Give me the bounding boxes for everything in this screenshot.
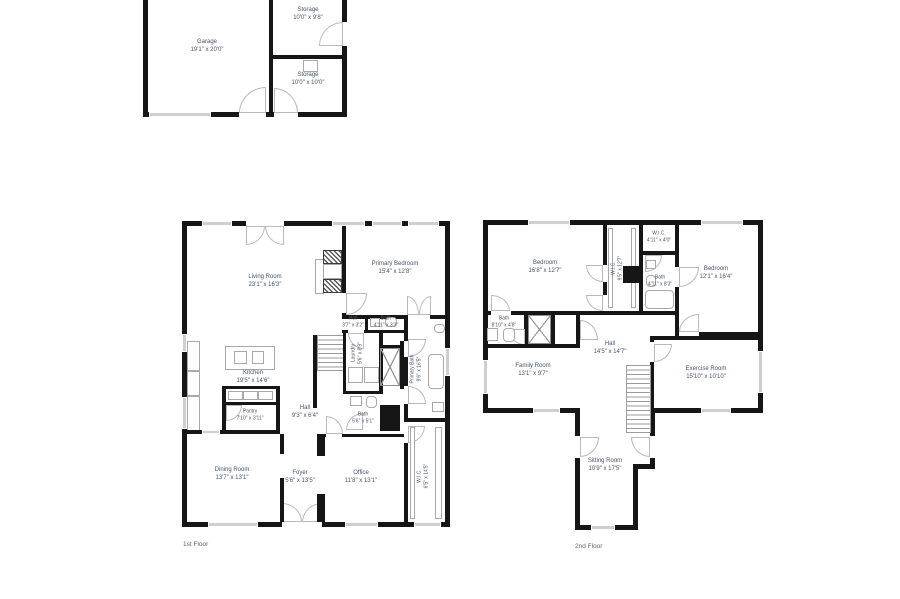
door-arc (319, 22, 343, 46)
kitchen-island (225, 346, 275, 370)
room-label-primary-bedroom: Primary Bedroom 15'4" x 12'8" (372, 260, 419, 276)
chimney-chase (623, 266, 639, 283)
wall (404, 357, 408, 386)
room-dims: 6'5" x 14'5" (423, 464, 430, 489)
shelf (243, 391, 258, 400)
room-name: Family Room (515, 362, 550, 370)
window (701, 408, 731, 413)
room-name: Hall (594, 340, 627, 348)
door-arc (586, 265, 603, 282)
window (345, 522, 378, 527)
room-dims: 4'11" x 4'0" (647, 237, 671, 244)
door-arc (326, 416, 343, 434)
wall (317, 494, 325, 522)
room-dims: 3'7" x 3'2" (342, 322, 364, 329)
wall (603, 282, 607, 295)
room-dims: 23'1" x 16'3" (248, 281, 281, 289)
room-label-hall: Hall 14'5" x 14'7" (594, 340, 627, 356)
wall (280, 478, 284, 522)
staircase (317, 335, 344, 371)
fireplace-box (323, 264, 342, 279)
window (758, 351, 763, 393)
toilet-fixture (366, 396, 377, 408)
sink-fixture (432, 402, 444, 412)
window (372, 221, 402, 226)
shower-box (380, 348, 400, 386)
garage-plan: Garage 19'1" x 20'0" Storage 10'0" x 9'8… (143, 0, 347, 118)
wall (143, 0, 148, 117)
room-label-wic-main: W.I.C. 9'5" x 12'7" (611, 256, 624, 281)
fireplace-hatch (323, 250, 342, 264)
door-gap (282, 522, 322, 527)
room-label-wic-small: W.I.C. 4'11" x 4'0" (647, 231, 671, 244)
closet-xbox (528, 315, 551, 344)
bathtub-fixture (428, 354, 444, 389)
washer-fixture (348, 367, 363, 383)
room-name: Bedroom (700, 265, 733, 273)
shelf (228, 391, 243, 400)
room-dims: 19'5" x 14'6" (237, 377, 270, 385)
wall (639, 225, 643, 313)
room-dims: 13'7" x 13'1" (215, 474, 250, 482)
room-label-hall-main: Hall 9'3" x 6'4" (292, 404, 318, 420)
door-arc (419, 296, 431, 315)
room-label-storage-lower: Storage 10'0" x 10'0" (292, 71, 325, 87)
island-sink-fixture (252, 351, 264, 364)
room-label-storage-upper: Storage 10'0" x 9'8" (293, 6, 323, 22)
wall (603, 311, 679, 315)
wall (269, 55, 347, 59)
window (701, 220, 743, 225)
room-dims: 4'11" x 8'3" (648, 281, 672, 288)
room-name: Storage (292, 71, 325, 79)
room-label-primary-bath: Primary Bath 9'6" x 16'5" (410, 355, 423, 384)
bathtub-fixture (645, 290, 674, 309)
room-name: Kitchen (237, 369, 270, 377)
door-arc (408, 386, 426, 404)
counter (187, 341, 200, 371)
window (208, 522, 258, 527)
window (483, 360, 488, 394)
room-label-sitting-room: Sitting Room 10'9" x 17'5" (588, 457, 622, 473)
room-label-laundry: Laundry 5'6" x 8'9" (351, 342, 364, 364)
room-dims: 11'8" x 13'1" (345, 477, 377, 485)
room-dims: 5'6" x 5'1" (352, 418, 374, 425)
door-arc (586, 295, 603, 311)
room-name: Living Room (248, 273, 281, 281)
dryer-fixture (364, 367, 379, 383)
room-label-family-room: Family Room 13'1" x 9'7" (515, 362, 550, 378)
wall (483, 311, 491, 315)
room-dims: 15'4" x 12'8" (372, 268, 419, 276)
floor-label-1st: 1st Floor (183, 541, 208, 548)
door-arc (679, 314, 699, 332)
wall (675, 287, 679, 332)
wall (404, 418, 450, 422)
room-name: Dining Room (215, 466, 250, 474)
room-name: Exercise Room (686, 365, 727, 373)
window (414, 522, 441, 527)
counter (187, 396, 200, 434)
door-arc (274, 88, 298, 113)
wall (483, 408, 578, 413)
wall (317, 434, 325, 456)
window (408, 221, 439, 226)
room-label-bath-lower: Bath 5'6" x 5'1" (352, 412, 374, 425)
staircase (626, 365, 651, 433)
room-dims: 13'1" x 9'7" (515, 370, 550, 378)
closet-rod (410, 427, 415, 519)
room-name: Hall (292, 404, 318, 412)
room-label-bedroom-right: Bedroom 12'1" x 16'4" (700, 265, 733, 281)
window (533, 408, 560, 413)
door-arc (265, 226, 284, 245)
window (202, 221, 232, 226)
room-dims: 10'0" x 9'8" (293, 14, 323, 22)
window (332, 221, 365, 226)
sink-fixture (646, 260, 656, 269)
toilet-fixture (434, 324, 445, 333)
room-dims: 9'5" x 12'7" (617, 256, 624, 281)
wall (404, 404, 408, 418)
room-dims: 14'5" x 14'7" (594, 348, 627, 356)
door-arc (580, 437, 599, 457)
wall (343, 391, 383, 394)
room-name: Office (345, 469, 377, 477)
room-label-exercise-room: Exercise Room 15'10" x 10'10" (686, 365, 727, 381)
wall (222, 386, 280, 389)
sink-fixture (350, 396, 362, 406)
room-label-bath-upper: Bath 4'11" x 8'3" (648, 275, 672, 288)
room-name: Sitting Room (588, 457, 622, 465)
door-arc (580, 320, 598, 340)
room-label-dining-room: Dining Room 13'7" x 13'1" (215, 466, 250, 482)
wall (343, 333, 346, 391)
wall (483, 344, 580, 348)
room-name: Bedroom (529, 259, 562, 267)
room-label-garage: Garage 19'1" x 20'0" (191, 38, 224, 54)
wall (404, 315, 408, 341)
floorplan-canvas: Garage 19'1" x 20'0" Storage 10'0" x 9'8… (0, 0, 900, 599)
room-name: Primary Bedroom (372, 260, 419, 268)
wall (342, 226, 346, 293)
room-dims: 9'3" x 6'4" (292, 412, 318, 420)
room-dims: 15'10" x 10'10" (686, 373, 727, 381)
door-arc (407, 296, 419, 315)
room-dims: 9'6" x 16'5" (416, 355, 423, 384)
room-label-office: Office 11'8" x 13'1" (345, 469, 377, 485)
door-arc (631, 437, 650, 457)
second-floor-plan: Bedroom 16'8" x 12'7" W.I.C. 9'5" x 12'7… (483, 220, 764, 530)
room-label-living-room: Living Room 23'1" x 16'3" (248, 273, 281, 289)
room-dims: 16'8" x 12'7" (529, 267, 562, 275)
wall (575, 408, 580, 530)
door-gap (326, 434, 342, 437)
window (445, 348, 450, 376)
first-floor-plan: Living Room 23'1" x 16'3" Primary Bedroo… (182, 221, 450, 527)
wall (603, 225, 607, 265)
room-label-hall-upper: Hall 3'7" x 3'2" (342, 316, 364, 329)
door-arc (239, 87, 266, 113)
shelf (258, 391, 273, 400)
room-label-kitchen: Kitchen 19'5" x 14'6" (237, 369, 270, 385)
room-dims: 19'1" x 20'0" (191, 46, 224, 54)
door-arc (491, 295, 510, 311)
room-label-wic: W.I.C. 6'5" x 14'5" (417, 464, 430, 489)
wall (650, 336, 763, 340)
opening (202, 430, 220, 434)
room-label-foyer: Foyer 5'6" x 13'5" (285, 469, 315, 485)
door-arc (679, 267, 699, 287)
room-dims: 10'9" x 17'5" (588, 465, 622, 473)
closet-shelf (435, 427, 442, 519)
wall (404, 443, 408, 522)
room-name: Primary Bath (410, 355, 417, 384)
fireplace-hatch (323, 279, 342, 293)
chimney-chase (380, 405, 400, 431)
room-dims: 12'1" x 16'4" (700, 273, 733, 281)
door-arc (654, 344, 672, 362)
room-name: Garage (191, 38, 224, 46)
room-label-pantry: Pantry 7'10" x 3'11" (236, 409, 263, 422)
door-arc (282, 503, 302, 522)
wall (430, 315, 450, 319)
room-dims: 5'6" x 8'9" (357, 342, 364, 364)
stove-fixture (234, 351, 247, 364)
room-dims: 8'10" x 4'8" (492, 322, 517, 329)
room-label-bedroom-left: Bedroom 16'8" x 12'7" (529, 259, 562, 275)
door-gap (650, 436, 655, 458)
sink-fixture (487, 328, 498, 341)
wall (675, 225, 679, 267)
door-arc (246, 226, 265, 245)
window (591, 525, 615, 530)
door-arc (346, 293, 367, 315)
room-name: Foyer (285, 469, 315, 477)
room-dims: 4'11" x 3'3" (374, 322, 398, 329)
window (528, 220, 570, 225)
wall (276, 386, 280, 433)
wall (280, 434, 284, 454)
room-name: Storage (293, 6, 323, 14)
wall (633, 464, 638, 530)
room-dims: 7'10" x 3'11" (236, 415, 263, 422)
room-name: Laundry (351, 342, 358, 364)
room-label-bath-left: Bath 8'10" x 4'8" (492, 316, 517, 329)
wall (182, 430, 280, 434)
garage-door-opening (149, 112, 211, 117)
toilet-fixture (503, 328, 515, 342)
room-dims: 5'6" x 13'5" (285, 477, 315, 485)
room-dims: 10'0" x 10'0" (292, 79, 325, 87)
counter (187, 371, 200, 396)
room-label-bath-upper: Bath 4'11" x 3'3" (374, 316, 398, 329)
floor-label-2nd: 2nd Floor (575, 543, 602, 550)
